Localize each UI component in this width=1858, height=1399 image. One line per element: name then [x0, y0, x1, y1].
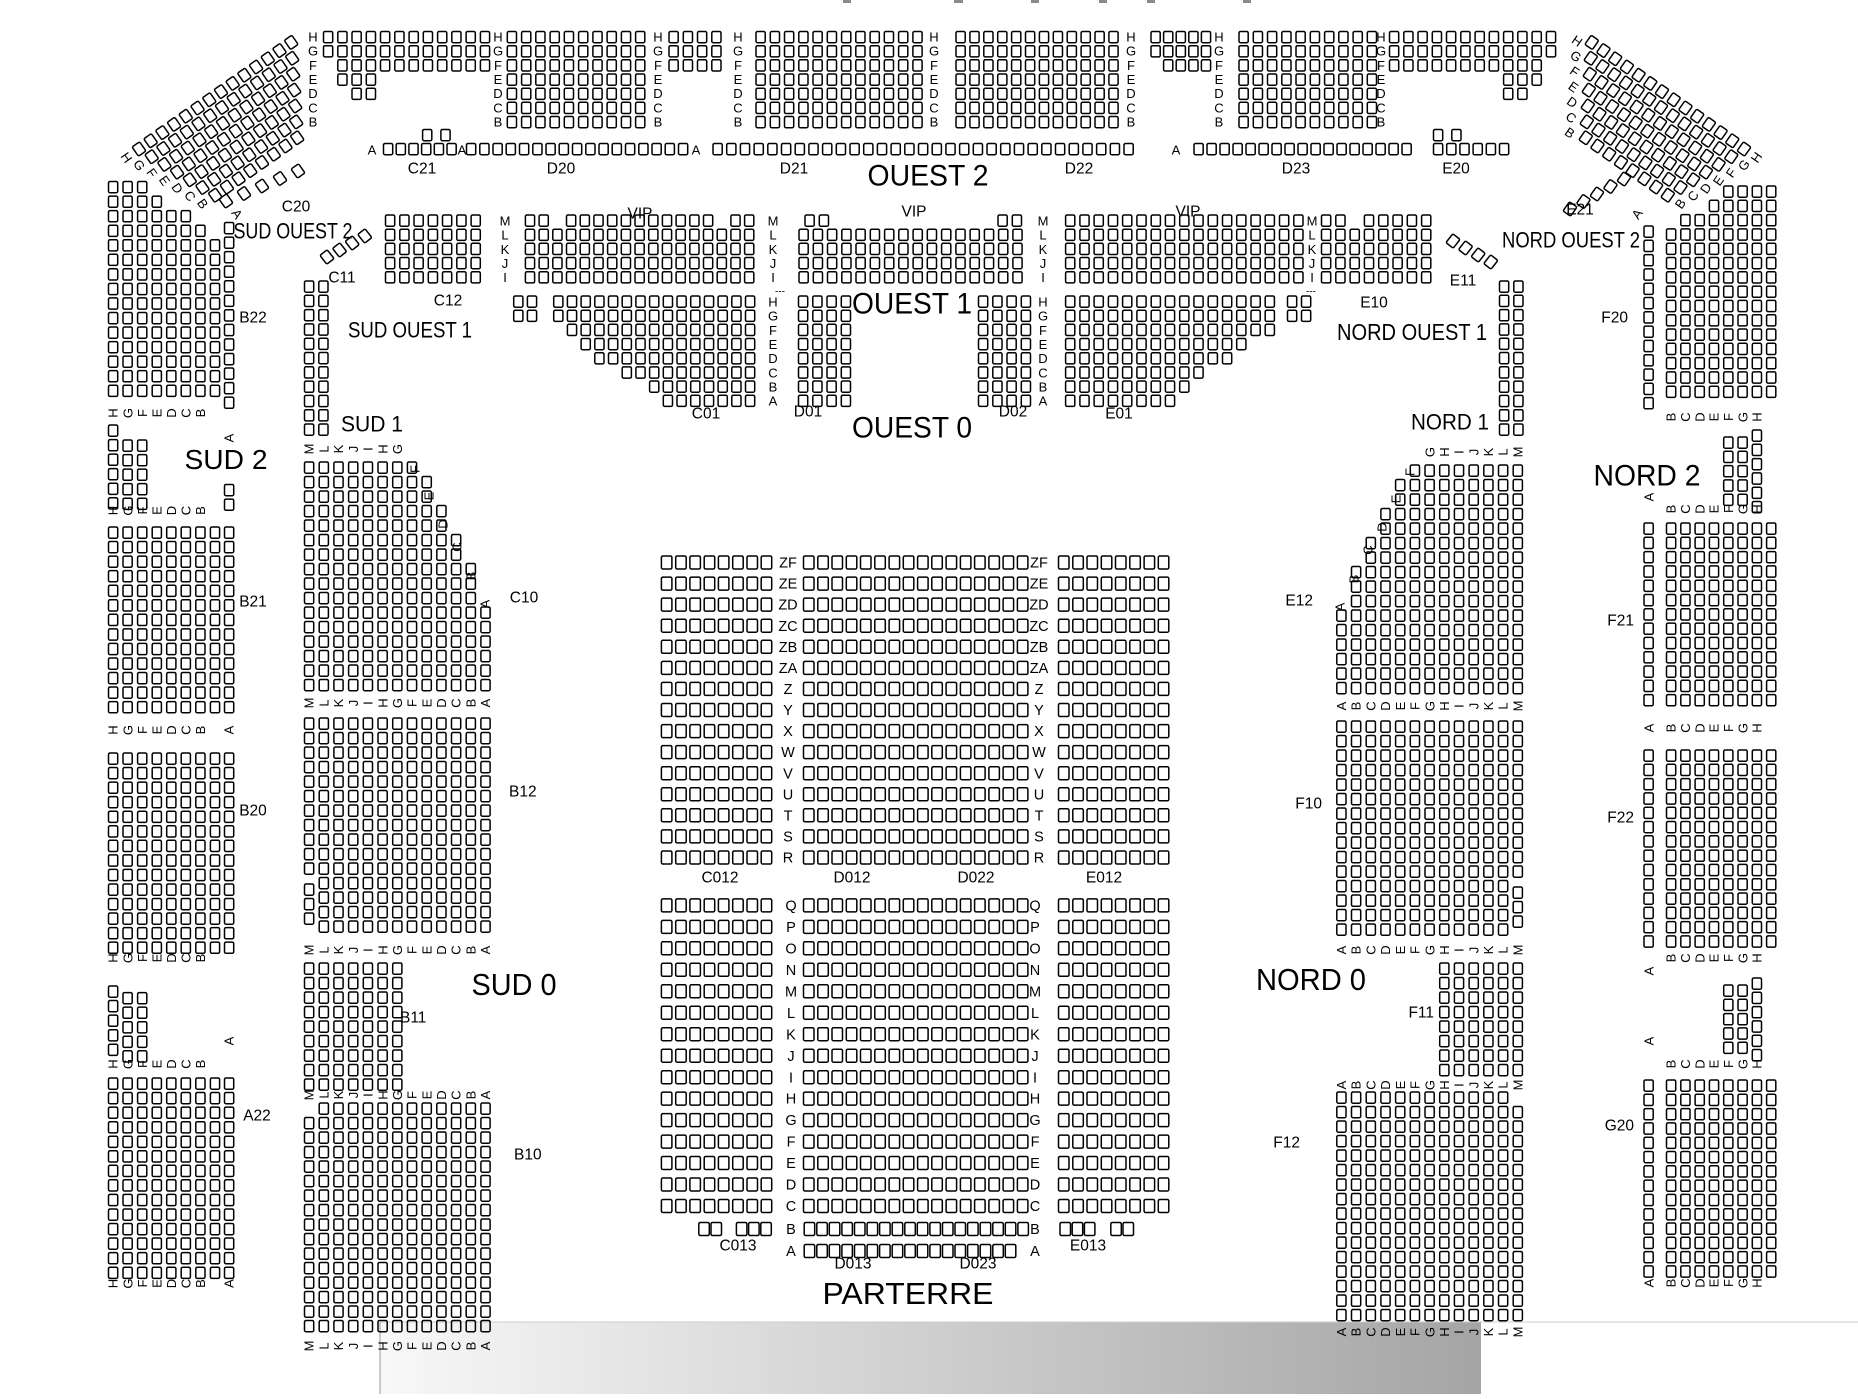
svg-text:K: K [1481, 945, 1496, 954]
svg-text:L: L [1496, 448, 1511, 455]
svg-text:ZD: ZD [778, 598, 797, 614]
svg-text:I: I [771, 270, 775, 285]
svg-text:H: H [1437, 945, 1452, 954]
svg-text:H: H [1038, 295, 1047, 310]
svg-text:H: H [1437, 1080, 1452, 1089]
svg-text:E: E [930, 72, 939, 87]
svg-text:ZB: ZB [1030, 640, 1049, 656]
svg-text:D20: D20 [547, 160, 576, 177]
svg-text:NORD OUEST 1: NORD OUEST 1 [1337, 319, 1487, 345]
svg-text:D: D [434, 698, 449, 707]
svg-text:K: K [501, 242, 510, 257]
svg-text:J: J [1309, 256, 1316, 271]
svg-text:J: J [1466, 703, 1481, 710]
svg-text:E: E [149, 953, 164, 962]
svg-text:A: A [1172, 143, 1181, 158]
svg-text:G: G [390, 444, 405, 454]
svg-text:D02: D02 [999, 403, 1027, 420]
svg-text:E21: E21 [1566, 201, 1594, 218]
svg-text:D: D [164, 953, 179, 962]
svg-text:C: C [653, 100, 662, 115]
svg-text:J: J [346, 947, 361, 954]
svg-text:E10: E10 [1360, 294, 1388, 311]
svg-text:C: C [1361, 545, 1376, 554]
svg-text:D: D [1692, 1278, 1707, 1287]
svg-text:A: A [458, 143, 467, 158]
svg-text:M: M [500, 214, 511, 229]
svg-text:E: E [1039, 337, 1048, 352]
svg-text:E: E [1707, 723, 1722, 732]
svg-text:C: C [1038, 365, 1047, 380]
svg-text:L: L [316, 946, 331, 953]
svg-text:A: A [478, 1090, 493, 1099]
svg-text:B: B [1664, 954, 1679, 963]
svg-text:K: K [331, 1090, 346, 1099]
svg-text:E: E [419, 1090, 434, 1099]
svg-text:B: B [463, 699, 478, 708]
svg-text:VIP: VIP [1176, 203, 1201, 220]
svg-text:B20: B20 [239, 802, 267, 819]
svg-text:H: H [1437, 447, 1452, 456]
svg-text:E: E [1377, 72, 1386, 87]
svg-text:E: E [149, 1059, 164, 1068]
svg-text:L: L [769, 228, 776, 243]
svg-text:B: B [769, 380, 778, 395]
svg-text:A: A [1334, 701, 1349, 710]
svg-text:B10: B10 [514, 1146, 542, 1163]
svg-text:J: J [346, 1343, 361, 1350]
svg-text:D: D [164, 1059, 179, 1068]
svg-text:H: H [106, 506, 121, 515]
svg-text:D: D [653, 86, 662, 101]
svg-text:C: C [449, 945, 464, 954]
svg-text:L: L [1496, 946, 1511, 953]
svg-text:G: G [120, 408, 135, 418]
svg-text:G: G [308, 44, 318, 59]
svg-text:D: D [1692, 953, 1707, 962]
svg-text:H: H [1376, 30, 1385, 45]
svg-text:L: L [316, 445, 331, 452]
svg-text:B: B [1664, 724, 1679, 733]
svg-text:J: J [770, 256, 777, 271]
svg-text:E01: E01 [1105, 405, 1133, 422]
svg-text:L: L [316, 1091, 331, 1098]
svg-text:I: I [503, 270, 507, 285]
svg-text:OUEST 1: OUEST 1 [852, 288, 972, 321]
svg-text:V: V [783, 766, 793, 782]
svg-text:J: J [346, 446, 361, 453]
svg-text:D: D [164, 506, 179, 515]
svg-text:I: I [361, 701, 376, 705]
svg-text:K: K [331, 945, 346, 954]
svg-text:D: D [733, 86, 742, 101]
svg-text:A: A [1333, 602, 1348, 611]
svg-text:C: C [449, 1090, 464, 1099]
svg-text:E: E [149, 1279, 164, 1288]
svg-text:E: E [1393, 945, 1408, 954]
svg-text:F: F [1215, 58, 1223, 73]
svg-text:B: B [1349, 1081, 1364, 1090]
svg-text:C: C [308, 100, 317, 115]
svg-text:B: B [1664, 1279, 1679, 1288]
svg-text:K: K [331, 1341, 346, 1350]
svg-text:S: S [1034, 830, 1044, 846]
svg-text:E: E [1707, 953, 1722, 962]
svg-text:F: F [1721, 1060, 1736, 1068]
svg-text:A: A [1334, 1080, 1349, 1089]
svg-text:G: G [1422, 1080, 1437, 1090]
svg-text:D: D [164, 408, 179, 417]
svg-text:E: E [1707, 1059, 1722, 1068]
svg-text:A: A [478, 698, 493, 707]
svg-text:D: D [434, 1341, 449, 1350]
svg-text:A: A [1641, 966, 1656, 975]
svg-text:H: H [1750, 412, 1765, 421]
svg-text:H: H [1126, 30, 1135, 45]
svg-text:B11: B11 [400, 1009, 426, 1026]
svg-text:M: M [1510, 1327, 1525, 1338]
svg-text:E012: E012 [1086, 869, 1122, 886]
svg-text:K: K [1481, 447, 1496, 456]
svg-text:G: G [120, 953, 135, 963]
svg-text:M: M [302, 698, 317, 709]
svg-text:H: H [375, 444, 390, 453]
svg-text:R: R [1034, 851, 1044, 867]
svg-text:I: I [361, 1344, 376, 1348]
svg-text:B: B [1127, 115, 1136, 130]
svg-text:NORD OUEST 2: NORD OUEST 2 [1502, 228, 1640, 253]
svg-text:SUD 2: SUD 2 [185, 444, 268, 475]
svg-text:T: T [1035, 808, 1044, 824]
svg-text:C: C [1364, 1327, 1379, 1336]
svg-text:A: A [692, 143, 701, 158]
svg-text:F: F [769, 323, 777, 338]
svg-text:D21: D21 [780, 160, 808, 177]
svg-text:A: A [222, 1036, 237, 1045]
svg-text:D: D [164, 1279, 179, 1288]
svg-text:E: E [419, 945, 434, 954]
svg-text:C: C [1214, 100, 1223, 115]
svg-text:M: M [1510, 945, 1525, 956]
svg-text:D: D [434, 1090, 449, 1099]
svg-text:C: C [1364, 1080, 1379, 1089]
svg-text:F: F [1377, 58, 1385, 73]
svg-text:C: C [1678, 1059, 1693, 1068]
svg-text:G: G [390, 945, 405, 955]
svg-text:C12: C12 [434, 292, 462, 309]
svg-text:SUD 1: SUD 1 [341, 412, 403, 437]
svg-text:B: B [193, 506, 208, 515]
svg-text:F: F [135, 506, 150, 514]
svg-text:L: L [1496, 1081, 1511, 1088]
svg-text:H: H [106, 408, 121, 417]
svg-text:B: B [1349, 946, 1364, 955]
svg-text:H: H [1437, 1327, 1452, 1336]
svg-text:T: T [784, 808, 793, 824]
svg-text:D: D [1378, 1327, 1393, 1336]
svg-text:ZF: ZF [1030, 556, 1048, 572]
svg-text:F: F [734, 58, 742, 73]
svg-text:E: E [1393, 701, 1408, 710]
svg-text:I: I [1452, 1330, 1467, 1334]
svg-text:E: E [734, 72, 743, 87]
svg-text:E: E [1127, 72, 1136, 87]
svg-text:D22: D22 [1065, 160, 1093, 177]
svg-text:F: F [135, 1060, 150, 1068]
svg-text:G: G [768, 309, 778, 324]
svg-text:H: H [308, 30, 317, 45]
svg-text:B: B [1664, 1060, 1679, 1069]
svg-text:G: G [1735, 1059, 1750, 1069]
svg-text:E: E [419, 698, 434, 707]
svg-text:ZD: ZD [1029, 598, 1048, 614]
svg-text:F: F [1408, 702, 1423, 710]
svg-text:C: C [768, 365, 777, 380]
svg-text:C: C [1126, 100, 1135, 115]
svg-text:K: K [331, 444, 346, 453]
svg-text:F: F [405, 1342, 420, 1350]
svg-text:K: K [1308, 242, 1317, 257]
svg-text:G: G [1422, 945, 1437, 955]
svg-text:H: H [375, 698, 390, 707]
svg-text:C: C [179, 1279, 194, 1288]
svg-text:M: M [302, 1341, 317, 1352]
svg-text:B: B [734, 115, 743, 130]
svg-text:ZC: ZC [778, 619, 797, 635]
svg-text:C: C [179, 1059, 194, 1068]
svg-text:C: C [929, 100, 938, 115]
svg-text:M: M [1510, 1080, 1525, 1091]
svg-text:C: C [1678, 953, 1693, 962]
svg-text:H: H [106, 725, 121, 734]
svg-text:D: D [1692, 1059, 1707, 1068]
svg-text:C: C [493, 100, 502, 115]
svg-text:ZE: ZE [1030, 577, 1049, 593]
svg-text:F11: F11 [1408, 1004, 1434, 1021]
svg-text:G: G [1126, 44, 1136, 59]
svg-text:E: E [654, 72, 663, 87]
svg-text:J: J [1466, 947, 1481, 954]
svg-text:G: G [929, 44, 939, 59]
svg-text:H: H [493, 30, 502, 45]
svg-text:L: L [1039, 228, 1046, 243]
svg-text:B: B [309, 115, 318, 130]
svg-text:B: B [1349, 1328, 1364, 1337]
svg-text:Y: Y [1034, 703, 1044, 719]
svg-text:B12: B12 [509, 783, 537, 800]
svg-text:B: B [463, 1342, 478, 1351]
svg-text:G: G [1735, 1278, 1750, 1288]
svg-text:E: E [769, 337, 778, 352]
svg-text:I: I [1452, 948, 1467, 952]
svg-text:M: M [302, 1090, 317, 1101]
svg-text:D: D [493, 86, 502, 101]
svg-text:J: J [346, 1092, 361, 1099]
svg-text:E: E [1707, 504, 1722, 513]
svg-text:F: F [654, 58, 662, 73]
svg-text:M: M [1307, 214, 1318, 229]
svg-text:E11: E11 [1450, 272, 1476, 289]
svg-text:SUD OUEST 2: SUD OUEST 2 [234, 219, 353, 244]
svg-text:NORD 0: NORD 0 [1256, 962, 1366, 997]
svg-text:E: E [494, 72, 503, 87]
svg-text:D022: D022 [957, 869, 994, 886]
svg-text:H: H [375, 1341, 390, 1350]
svg-text:J: J [1466, 1329, 1481, 1336]
svg-text:D: D [1126, 86, 1135, 101]
svg-text:M: M [768, 214, 779, 229]
svg-text:V: V [1034, 766, 1044, 782]
svg-text:F: F [1403, 468, 1418, 476]
svg-text:E: E [1707, 1278, 1722, 1287]
svg-text:B: B [193, 954, 208, 963]
svg-text:K: K [1039, 242, 1048, 257]
svg-text:H: H [1750, 1278, 1765, 1287]
svg-text:M: M [1510, 701, 1525, 712]
svg-text:SUD 0: SUD 0 [472, 967, 557, 1002]
svg-text:F: F [1039, 323, 1047, 338]
svg-text:F: F [1408, 1081, 1423, 1089]
svg-text:E: E [149, 725, 164, 734]
svg-text:L: L [316, 699, 331, 706]
svg-text:F: F [1127, 58, 1135, 73]
svg-text:A: A [478, 599, 493, 608]
svg-text:Z: Z [784, 682, 793, 698]
svg-text:F: F [1721, 505, 1736, 513]
svg-text:D012: D012 [833, 869, 870, 886]
svg-text:A: A [1641, 492, 1656, 501]
svg-text:G: G [390, 698, 405, 708]
svg-text:G: G [1735, 953, 1750, 963]
svg-text:D: D [768, 351, 777, 366]
svg-text:ZB: ZB [779, 640, 798, 656]
svg-text:H: H [106, 1279, 121, 1288]
svg-text:F: F [135, 1279, 150, 1287]
svg-text:E: E [1393, 1080, 1408, 1089]
svg-text:F21: F21 [1607, 612, 1634, 629]
svg-text:C: C [733, 100, 742, 115]
svg-text:G: G [1214, 44, 1224, 59]
svg-text:I: I [1041, 270, 1045, 285]
svg-text:G: G [1422, 701, 1437, 711]
svg-text:VIP: VIP [902, 203, 927, 220]
svg-text:C: C [449, 1341, 464, 1350]
svg-text:E20: E20 [1442, 160, 1470, 177]
svg-text:M: M [1510, 447, 1525, 458]
svg-text:A: A [478, 1341, 493, 1350]
svg-text:OUEST 2: OUEST 2 [868, 160, 989, 193]
svg-text:NORD 1: NORD 1 [1411, 410, 1489, 435]
svg-text:C11: C11 [328, 269, 355, 286]
svg-text:ZA: ZA [779, 661, 798, 677]
svg-text:F: F [405, 946, 420, 954]
svg-text:L: L [1496, 1328, 1511, 1335]
svg-text:F: F [494, 58, 502, 73]
svg-text:C: C [1678, 412, 1693, 421]
svg-text:A: A [1641, 723, 1656, 732]
svg-text:I: I [1310, 270, 1314, 285]
svg-text:G: G [120, 725, 135, 735]
svg-text:G: G [1735, 723, 1750, 733]
svg-text:K: K [1481, 1080, 1496, 1089]
svg-text:B22: B22 [239, 309, 267, 326]
svg-text:K: K [1481, 701, 1496, 710]
svg-text:D: D [1378, 945, 1393, 954]
svg-text:C: C [1678, 1278, 1693, 1287]
svg-text:SUD OUEST 1: SUD OUEST 1 [348, 318, 472, 343]
svg-text:A: A [222, 1279, 237, 1288]
svg-text:B: B [1664, 413, 1679, 422]
svg-text:F: F [405, 699, 420, 707]
svg-text:H: H [733, 30, 742, 45]
svg-text:I: I [361, 447, 376, 451]
svg-text:ZE: ZE [779, 577, 798, 593]
svg-text:F: F [1721, 954, 1736, 962]
svg-text:NORD 2: NORD 2 [1594, 460, 1701, 493]
svg-text:H: H [1437, 701, 1452, 710]
svg-text:B: B [930, 115, 939, 130]
svg-text:A: A [1039, 394, 1048, 409]
svg-text:H: H [106, 1059, 121, 1068]
svg-text:B: B [193, 1279, 208, 1288]
svg-text:F: F [1721, 1279, 1736, 1287]
svg-text:J: J [502, 256, 509, 271]
svg-text:A: A [1334, 945, 1349, 954]
svg-text:A22: A22 [243, 1107, 271, 1124]
svg-text:G: G [653, 44, 663, 59]
svg-text:H: H [1214, 30, 1223, 45]
svg-text:A: A [1641, 1278, 1656, 1287]
svg-text:E: E [422, 491, 437, 500]
svg-text:J: J [1040, 256, 1047, 271]
svg-text:J: J [1466, 449, 1481, 456]
svg-text:B: B [654, 115, 663, 130]
svg-text:H: H [1750, 504, 1765, 513]
svg-text:G: G [1038, 309, 1048, 324]
svg-text:A: A [222, 433, 237, 442]
svg-text:I: I [361, 948, 376, 952]
svg-text:G: G [1422, 1327, 1437, 1337]
svg-text:I: I [1452, 450, 1467, 454]
svg-text:G: G [120, 1278, 135, 1288]
svg-text:G: G [733, 44, 743, 59]
svg-text:G: G [1735, 412, 1750, 422]
svg-text:A: A [478, 945, 493, 954]
svg-text:D: D [434, 945, 449, 954]
svg-text:L: L [1496, 702, 1511, 709]
svg-text:M: M [302, 444, 317, 455]
svg-text:B: B [1664, 505, 1679, 514]
svg-text:U: U [783, 787, 793, 803]
svg-text:I: I [1452, 704, 1467, 708]
svg-text:Z: Z [1035, 682, 1044, 698]
svg-text:D: D [308, 86, 317, 101]
svg-text:X: X [783, 724, 793, 740]
svg-text:E: E [419, 1341, 434, 1350]
svg-text:E12: E12 [1285, 592, 1313, 609]
svg-text:I: I [1452, 1083, 1467, 1087]
svg-text:G: G [493, 44, 503, 59]
svg-text:ZF: ZF [779, 556, 797, 572]
svg-text:E: E [1389, 494, 1404, 503]
svg-text:G: G [120, 505, 135, 515]
svg-text:H: H [929, 30, 938, 45]
svg-text:J: J [346, 700, 361, 707]
svg-text:C20: C20 [282, 198, 311, 215]
svg-text:X: X [1034, 724, 1044, 740]
svg-text:G: G [390, 1341, 405, 1351]
svg-text:F: F [408, 465, 423, 473]
